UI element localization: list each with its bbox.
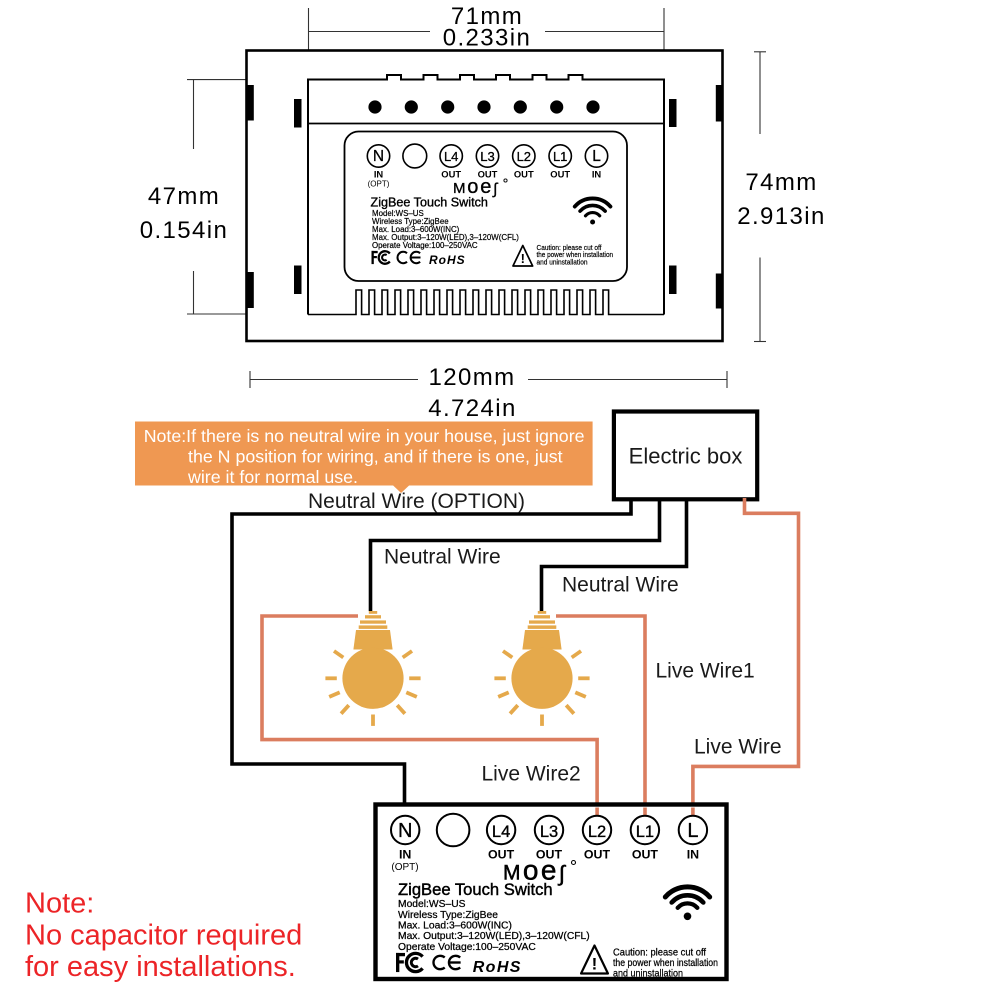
svg-text:the N position for wiring, and: the N position for wiring, and if there …	[188, 447, 563, 467]
svg-text:120mm: 120mm	[428, 364, 515, 391]
svg-text:Neutral Wire: Neutral Wire	[384, 546, 501, 569]
svg-text:Note:: Note:	[25, 888, 94, 920]
svg-text:Note:If there is no neutral wi: Note:If there is no neutral wire in your…	[144, 426, 585, 446]
svg-text:Electric box: Electric box	[629, 444, 743, 469]
svg-text:47mm: 47mm	[148, 183, 220, 210]
svg-text:ZigBee Touch Switch: ZigBee Touch Switch	[398, 880, 553, 899]
svg-text:L4: L4	[444, 149, 458, 164]
svg-text:Live Wire: Live Wire	[694, 736, 782, 759]
svg-text:0.233in: 0.233in	[443, 25, 532, 52]
svg-text:OUT: OUT	[632, 848, 659, 862]
svg-text:IN: IN	[687, 848, 699, 862]
svg-text:Max. Output:3–120W(LED),3–120W: Max. Output:3–120W(LED),3–120W(CFL)	[398, 931, 590, 942]
svg-text:IN: IN	[374, 169, 384, 180]
svg-text:OUT: OUT	[441, 169, 461, 180]
svg-text:OUT: OUT	[514, 169, 534, 180]
svg-text:N: N	[398, 820, 412, 842]
svg-text:for easy installations.: for easy installations.	[25, 951, 296, 983]
svg-text:Operate Voltage:100–250VAC: Operate Voltage:100–250VAC	[372, 241, 478, 250]
svg-text:Max. Load:3–600W(INC): Max. Load:3–600W(INC)	[398, 920, 512, 931]
svg-text:L2: L2	[517, 149, 531, 164]
svg-text:L: L	[592, 148, 601, 165]
svg-text:L3: L3	[540, 823, 558, 841]
svg-text:OUT: OUT	[488, 848, 515, 862]
svg-text:RoHS: RoHS	[429, 253, 466, 267]
svg-text:Moe∫: Moe∫	[453, 176, 499, 198]
svg-text:IN: IN	[592, 169, 602, 180]
svg-text:Live Wire2: Live Wire2	[482, 763, 581, 786]
svg-text:and uninstallation: and uninstallation	[613, 968, 683, 980]
svg-text:wire it for normal use.: wire it for normal use.	[187, 467, 358, 487]
svg-text:Model:WS–US: Model:WS–US	[398, 899, 466, 910]
svg-text:N: N	[373, 148, 384, 165]
svg-text:and uninstallation: and uninstallation	[537, 258, 588, 267]
svg-text:!: !	[592, 954, 598, 973]
svg-text:RoHS: RoHS	[473, 959, 522, 976]
svg-text:No capacitor required: No capacitor required	[25, 920, 302, 952]
svg-text:74mm: 74mm	[745, 169, 817, 196]
svg-text:L3: L3	[480, 149, 494, 164]
svg-text:L: L	[687, 820, 698, 842]
svg-text:L2: L2	[588, 823, 606, 841]
svg-text:Wireless Type:ZigBee: Wireless Type:ZigBee	[398, 910, 498, 921]
svg-text:2.913in: 2.913in	[737, 203, 826, 230]
svg-text:L1: L1	[553, 149, 567, 164]
svg-text:(OPT): (OPT)	[368, 180, 390, 189]
svg-text:OUT: OUT	[584, 848, 611, 862]
svg-text:Operate Voltage:100–250VAC: Operate Voltage:100–250VAC	[398, 942, 536, 953]
svg-text:0.154in: 0.154in	[140, 217, 229, 244]
svg-text:Neutral Wire: Neutral Wire	[562, 574, 679, 597]
svg-text:!: !	[521, 251, 525, 266]
svg-text:4.724in: 4.724in	[428, 395, 517, 422]
svg-text:Neutral Wire (OPTION): Neutral Wire (OPTION)	[308, 490, 525, 513]
svg-text:L4: L4	[492, 823, 510, 841]
svg-text:L1: L1	[636, 823, 654, 841]
svg-text:(OPT): (OPT)	[391, 862, 418, 873]
svg-text:IN: IN	[399, 848, 411, 862]
svg-text:OUT: OUT	[550, 169, 570, 180]
svg-text:ZigBee Touch Switch: ZigBee Touch Switch	[371, 196, 488, 210]
svg-text:Live Wire1: Live Wire1	[656, 660, 755, 683]
